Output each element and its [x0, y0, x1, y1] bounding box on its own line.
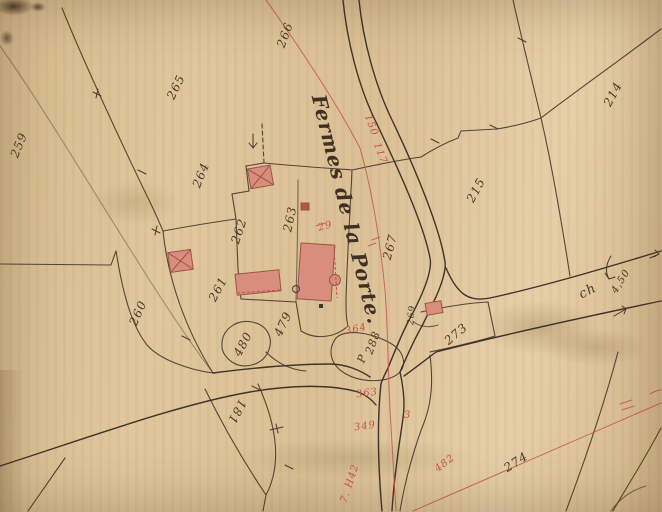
- map-linework: [0, 0, 662, 512]
- building-small-east: [425, 301, 443, 316]
- track-west-upper: [213, 364, 370, 377]
- parcel-label-269: 269: [406, 305, 418, 326]
- road-east-lower: [436, 301, 661, 352]
- barn-crossed-2: [168, 249, 194, 272]
- barn-crossed-1: [247, 165, 273, 189]
- red-tick-3: [620, 400, 634, 410]
- red-tick-4: [650, 390, 661, 394]
- building-tiny: [301, 203, 309, 210]
- road-south-right: [392, 372, 404, 511]
- cadastral-map: 259 265 266 264 262 263 267 215 214 260 …: [0, 0, 662, 512]
- boundary-marker-dot: [319, 304, 323, 308]
- track-west-lower: [0, 386, 376, 466]
- building-dashed-edge-2: [334, 247, 337, 298]
- red-note-3: 3: [404, 410, 411, 421]
- well-circle: [330, 275, 341, 286]
- road-south-left: [378, 384, 382, 511]
- building-main: [297, 243, 335, 301]
